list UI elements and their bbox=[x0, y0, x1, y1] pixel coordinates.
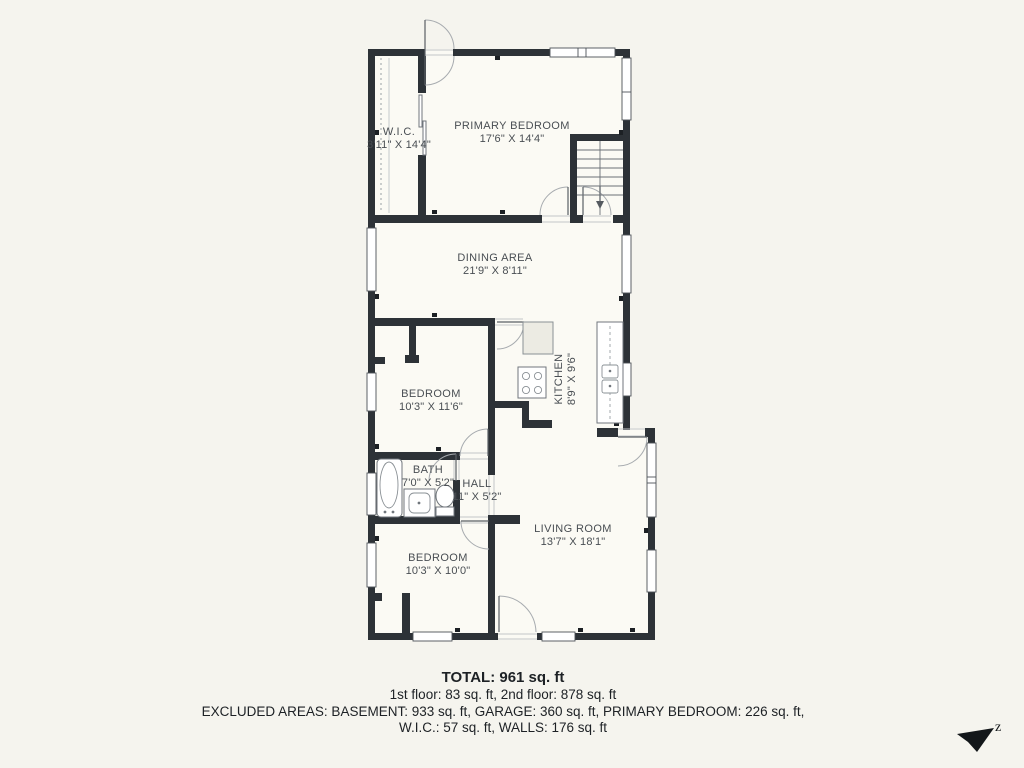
room-dims: 17'6" X 14'4" bbox=[454, 133, 570, 146]
north-arrow-icon: z bbox=[957, 720, 1001, 752]
room-label-living-room: LIVING ROOM 13'7" X 18'1" bbox=[534, 523, 612, 549]
room-label-kitchen: KITCHEN 8'9" X 9'6" bbox=[553, 353, 579, 405]
room-name: KITCHEN bbox=[553, 353, 566, 405]
room-label-dining-area: DINING AREA 21'9" X 8'11" bbox=[457, 252, 532, 278]
summary-excluded-line1: EXCLUDED AREAS: BASEMENT: 933 sq. ft, GA… bbox=[202, 704, 805, 721]
fridge bbox=[523, 322, 553, 354]
room-label-primary-bedroom: PRIMARY BEDROOM 17'6" X 14'4" bbox=[454, 120, 570, 146]
summary-excluded-line2: W.I.C.: 57 sq. ft, WALLS: 176 sq. ft bbox=[202, 720, 805, 737]
room-dims: 21'9" X 8'11" bbox=[457, 265, 532, 278]
room-dims: 3'11" X 14'4" bbox=[367, 139, 431, 152]
area-summary: TOTAL: 961 sq. ft 1st floor: 83 sq. ft, … bbox=[202, 668, 805, 737]
room-dims: 7'0" X 5'2" bbox=[402, 477, 454, 490]
room-dims: 11" X 5'2" bbox=[452, 491, 501, 504]
room-name: DINING AREA bbox=[457, 252, 532, 265]
room-label-bedroom-middle: BEDROOM 10'3" X 11'6" bbox=[399, 388, 463, 414]
stove bbox=[518, 367, 546, 398]
room-name: BATH bbox=[402, 464, 454, 477]
room-dims: 10'3" X 11'6" bbox=[399, 401, 463, 414]
room-name: LIVING ROOM bbox=[534, 523, 612, 536]
north-arrow-label: z bbox=[995, 720, 1001, 735]
room-name: BEDROOM bbox=[406, 552, 471, 565]
room-name: W.I.C. bbox=[367, 126, 431, 139]
room-dims: 8'9" X 9'6" bbox=[566, 353, 579, 405]
room-label-bath: BATH 7'0" X 5'2" bbox=[402, 464, 454, 490]
room-dims: 10'3" X 10'0" bbox=[406, 565, 471, 578]
room-dims: 13'7" X 18'1" bbox=[534, 536, 612, 549]
room-label-bedroom-bottom: BEDROOM 10'3" X 10'0" bbox=[406, 552, 471, 578]
room-name: BEDROOM bbox=[399, 388, 463, 401]
room-label-hall: HALL 11" X 5'2" bbox=[452, 478, 501, 504]
room-name: PRIMARY BEDROOM bbox=[454, 120, 570, 133]
toilet-tank bbox=[436, 507, 454, 516]
room-label-wic: W.I.C. 3'11" X 14'4" bbox=[367, 126, 431, 152]
room-name: HALL bbox=[452, 478, 501, 491]
summary-total: TOTAL: 961 sq. ft bbox=[202, 668, 805, 687]
summary-floors: 1st floor: 83 sq. ft, 2nd floor: 878 sq.… bbox=[202, 687, 805, 704]
floor-plan-canvas: z bbox=[0, 0, 1024, 768]
